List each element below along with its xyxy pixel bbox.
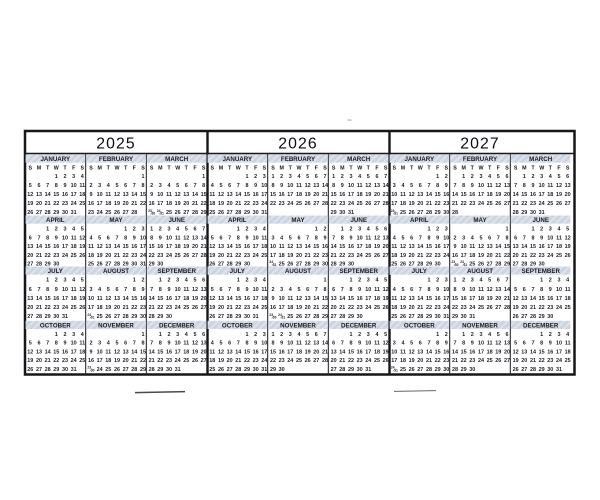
svg-text:22232425262728: 22232425262728 <box>270 201 328 207</box>
svg-text:JANUARY: JANUARY <box>404 156 435 163</box>
svg-text:MARCH: MARCH <box>347 156 371 163</box>
svg-text:21222324252627: 21222324252627 <box>149 305 207 311</box>
svg-text:10111213141516: 10111213141516 <box>391 192 449 198</box>
svg-text:15161718192021: 15161718192021 <box>149 244 207 250</box>
svg-text:AUGUST: AUGUST <box>285 268 311 275</box>
svg-text:16171819202122: 16171819202122 <box>149 201 207 207</box>
svg-text:19202122232425: 19202122232425 <box>209 305 267 311</box>
svg-text:FEBRUARY: FEBRUARY <box>99 156 134 163</box>
svg-text:SEPTEMBER: SEPTEMBER <box>157 268 196 275</box>
svg-text:11121314151617: 11121314151617 <box>209 349 267 355</box>
svg-text:28: 28 <box>452 210 458 216</box>
svg-text:567891011: 567891011 <box>211 235 267 241</box>
svg-text:22232425262728: 22232425262728 <box>452 305 510 311</box>
svg-text:14151617181920: 14151617181920 <box>331 244 389 250</box>
svg-text:12131415161718: 12131415161718 <box>209 244 267 250</box>
svg-text:22232425262728: 22232425262728 <box>331 201 389 207</box>
svg-text:25262728293031: 25262728293031 <box>391 314 449 320</box>
svg-text:JULY: JULY <box>48 268 64 275</box>
svg-text:14151617181920: 14151617181920 <box>149 349 207 355</box>
svg-text:22232425262728: 22232425262728 <box>149 253 207 259</box>
svg-text:15161718192021: 15161718192021 <box>331 192 389 198</box>
svg-text:2026: 2026 <box>278 136 318 153</box>
svg-text:OCTOBER: OCTOBER <box>404 322 435 329</box>
svg-text:13141516171819: 13141516171819 <box>331 296 389 302</box>
svg-text:22232425262728: 22232425262728 <box>270 358 328 364</box>
svg-text:293031: 293031 <box>452 314 475 320</box>
svg-text:20212223242526: 20212223242526 <box>513 253 571 259</box>
svg-text:JUNE: JUNE <box>168 217 185 224</box>
svg-text:17181920212223: 17181920212223 <box>270 253 328 259</box>
svg-text:10111213141516: 10111213141516 <box>88 296 146 302</box>
svg-text:19202122232425: 19202122232425 <box>513 305 571 311</box>
svg-text:567891011: 567891011 <box>29 341 85 347</box>
svg-text:14151617181920: 14151617181920 <box>452 192 510 198</box>
svg-text:FEBRUARY: FEBRUARY <box>281 156 316 163</box>
svg-text:NOVEMBER: NOVEMBER <box>462 322 498 329</box>
svg-text:2025: 2025 <box>96 136 136 153</box>
svg-text:21222324252627: 21222324252627 <box>452 358 510 364</box>
svg-text:14151617181920: 14151617181920 <box>149 296 207 302</box>
svg-text:JANUARY: JANUARY <box>222 156 253 163</box>
svg-text:JANUARY: JANUARY <box>40 156 71 163</box>
svg-text:21222324252627: 21222324252627 <box>513 201 571 207</box>
svg-text:MAY: MAY <box>291 217 305 224</box>
svg-text:JUNE: JUNE <box>532 217 549 224</box>
svg-text:19202122232425: 19202122232425 <box>513 358 571 364</box>
svg-text:16171819202122: 16171819202122 <box>452 253 510 259</box>
svg-text:1: 1 <box>323 278 326 284</box>
svg-text:10111213141516: 10111213141516 <box>391 349 449 355</box>
svg-text:1: 1 <box>202 174 205 180</box>
svg-text:DECEMBER: DECEMBER <box>523 322 559 329</box>
svg-text:JULY: JULY <box>230 268 246 275</box>
svg-text:SEPTEMBER: SEPTEMBER <box>521 268 560 275</box>
svg-text:15161718192021: 15161718192021 <box>270 349 328 355</box>
svg-text:10111213141516: 10111213141516 <box>270 244 328 250</box>
svg-text:20212223242526: 20212223242526 <box>27 305 85 311</box>
svg-text:14151617181920: 14151617181920 <box>513 192 571 198</box>
svg-text:25262728293031: 25262728293031 <box>209 210 267 216</box>
svg-text:18192021222324: 18192021222324 <box>88 253 146 259</box>
svg-text:1: 1 <box>141 332 144 338</box>
svg-text:16171819202122: 16171819202122 <box>270 305 328 311</box>
svg-text:21222324252627: 21222324252627 <box>149 358 207 364</box>
svg-text:1: 1 <box>505 227 508 233</box>
svg-text:293031: 293031 <box>331 210 354 216</box>
svg-text:APRIL: APRIL <box>410 217 429 224</box>
svg-text:MARCH: MARCH <box>529 156 553 163</box>
svg-text:13141516171819: 13141516171819 <box>27 244 85 250</box>
svg-text:16171819202122: 16171819202122 <box>88 201 146 207</box>
svg-text:17181920212223: 17181920212223 <box>391 201 449 207</box>
svg-text:NOVEMBER: NOVEMBER <box>280 322 316 329</box>
svg-text:12131415161718: 12131415161718 <box>513 296 571 302</box>
svg-text:15161718192021: 15161718192021 <box>270 192 328 198</box>
svg-text:282930: 282930 <box>452 367 475 373</box>
svg-text:21222324252627: 21222324252627 <box>452 201 510 207</box>
svg-text:18192021222324: 18192021222324 <box>391 253 449 259</box>
svg-text:DECEMBER: DECEMBER <box>159 322 195 329</box>
svg-text:11121314151617: 11121314151617 <box>391 244 449 250</box>
svg-text:APRIL: APRIL <box>46 217 65 224</box>
svg-text:19202122232425: 19202122232425 <box>27 201 85 207</box>
svg-text:1: 1 <box>141 174 144 180</box>
svg-text:MAY: MAY <box>473 217 487 224</box>
svg-text:18192021222324: 18192021222324 <box>209 201 267 207</box>
svg-text:AUGUST: AUGUST <box>103 268 129 275</box>
svg-text:12131415161718: 12131415161718 <box>513 349 571 355</box>
svg-text:2027: 2027 <box>460 136 500 153</box>
svg-text:12131415161718: 12131415161718 <box>27 192 85 198</box>
svg-text:15161718192021: 15161718192021 <box>452 296 510 302</box>
svg-text:JUNE: JUNE <box>350 217 367 224</box>
svg-text:FEBRUARY: FEBRUARY <box>463 156 498 163</box>
svg-text:OCTOBER: OCTOBER <box>40 322 71 329</box>
svg-text:11121314151617: 11121314151617 <box>391 296 449 302</box>
svg-text:13141516171819: 13141516171819 <box>513 244 571 250</box>
svg-text:18192021222324: 18192021222324 <box>209 358 267 364</box>
svg-text:APRIL: APRIL <box>228 217 247 224</box>
svg-text:19202122232425: 19202122232425 <box>27 358 85 364</box>
svg-text:NOVEMBER: NOVEMBER <box>98 322 134 329</box>
svg-text:20212223242526: 20212223242526 <box>331 358 389 364</box>
svg-text:13141516171819: 13141516171819 <box>331 349 389 355</box>
svg-text:11121314151617: 11121314151617 <box>209 192 267 198</box>
svg-text:20212223242526: 20212223242526 <box>331 305 389 311</box>
svg-text:12131415161718: 12131415161718 <box>27 349 85 355</box>
svg-text:JULY: JULY <box>412 268 428 275</box>
svg-text:12131415161718: 12131415161718 <box>209 296 267 302</box>
svg-text:21222324252627: 21222324252627 <box>331 253 389 259</box>
svg-text:19202122232425: 19202122232425 <box>209 253 267 259</box>
svg-text:AUGUST: AUGUST <box>467 268 493 275</box>
svg-text:17181920212223: 17181920212223 <box>88 305 146 311</box>
svg-text:OCTOBER: OCTOBER <box>222 322 253 329</box>
svg-text:17181920212223: 17181920212223 <box>391 358 449 364</box>
svg-text:18192021222324: 18192021222324 <box>391 305 449 311</box>
svg-text:567891011: 567891011 <box>29 183 85 189</box>
svg-text:16171819202122: 16171819202122 <box>88 358 146 364</box>
svg-text:567891011: 567891011 <box>211 287 267 293</box>
svg-text:282930: 282930 <box>149 314 172 320</box>
svg-text:DECEMBER: DECEMBER <box>341 322 377 329</box>
svg-text:MARCH: MARCH <box>165 156 189 163</box>
svg-text:13141516171819: 13141516171819 <box>27 296 85 302</box>
svg-text:MAY: MAY <box>109 217 123 224</box>
svg-text:SEPTEMBER: SEPTEMBER <box>339 268 378 275</box>
svg-text:14151617181920: 14151617181920 <box>452 349 510 355</box>
svg-text:25262728293031: 25262728293031 <box>209 367 267 373</box>
svg-text:20212223242526: 20212223242526 <box>27 253 85 259</box>
